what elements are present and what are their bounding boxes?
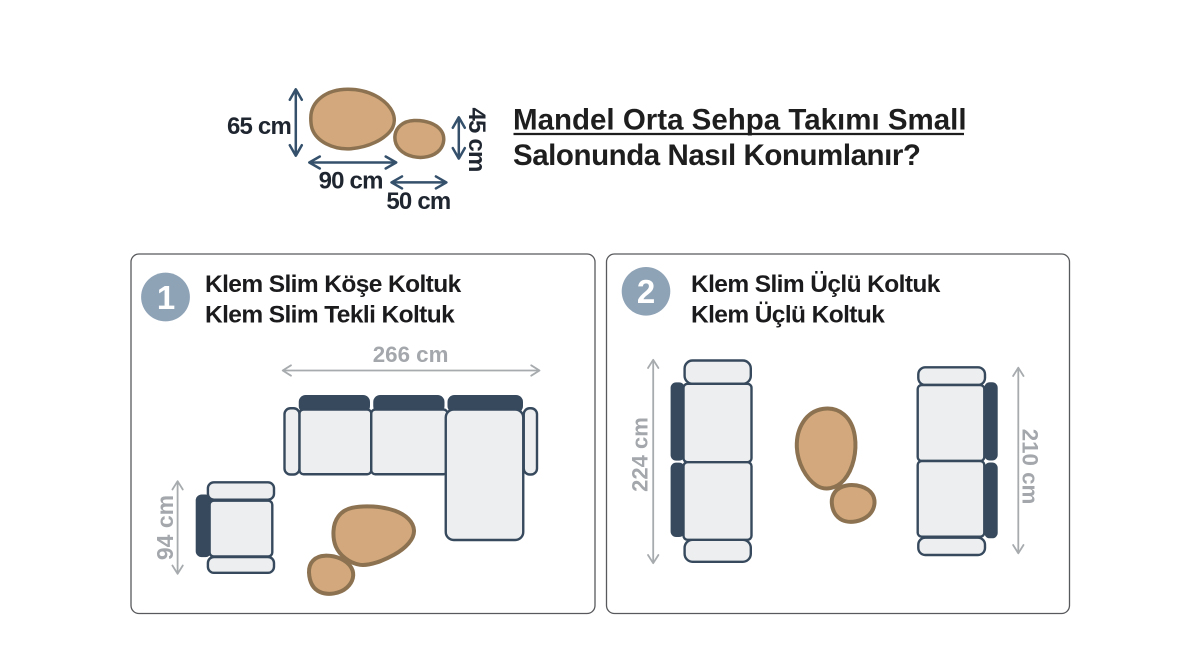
svg-text:90 cm: 90 cm	[319, 168, 383, 195]
svg-text:Klem Slim Üçlü Koltuk: Klem Slim Üçlü Koltuk	[691, 271, 941, 298]
svg-text:50 cm: 50 cm	[386, 188, 450, 215]
svg-text:2: 2	[637, 273, 655, 310]
svg-text:Mandel Orta Sehpa Takımı Small: Mandel Orta Sehpa Takımı Small	[513, 103, 967, 136]
svg-text:Klem Slim Tekli Koltuk: Klem Slim Tekli Koltuk	[205, 301, 455, 328]
svg-text:65 cm: 65 cm	[227, 113, 291, 140]
svg-text:Klem Slim Köşe Koltuk: Klem Slim Köşe Koltuk	[205, 271, 462, 298]
svg-text:Salonunda Nasıl Konumlanır?: Salonunda Nasıl Konumlanır?	[513, 139, 920, 172]
svg-text:94 cm: 94 cm	[152, 495, 178, 560]
svg-text:210 cm: 210 cm	[1018, 429, 1043, 505]
svg-text:Klem Üçlü Koltuk: Klem Üçlü Koltuk	[691, 301, 885, 328]
svg-text:266 cm: 266 cm	[373, 342, 449, 367]
svg-text:1: 1	[157, 279, 175, 316]
svg-text:224 cm: 224 cm	[628, 417, 653, 492]
svg-text:45 cm: 45 cm	[463, 107, 490, 171]
